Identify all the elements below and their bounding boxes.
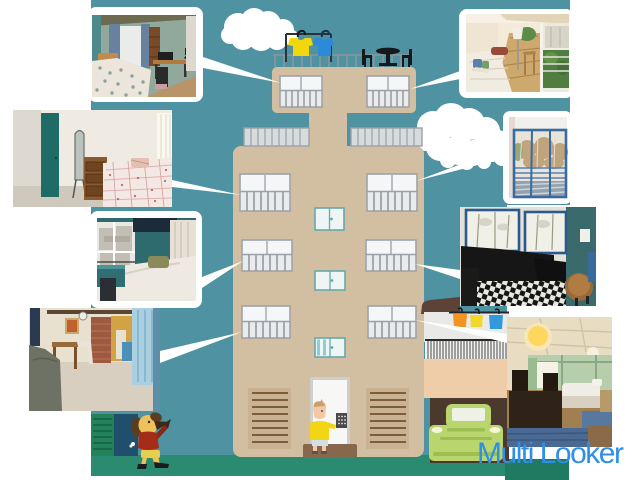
svg-text:Multi Looker: Multi Looker (477, 437, 624, 470)
